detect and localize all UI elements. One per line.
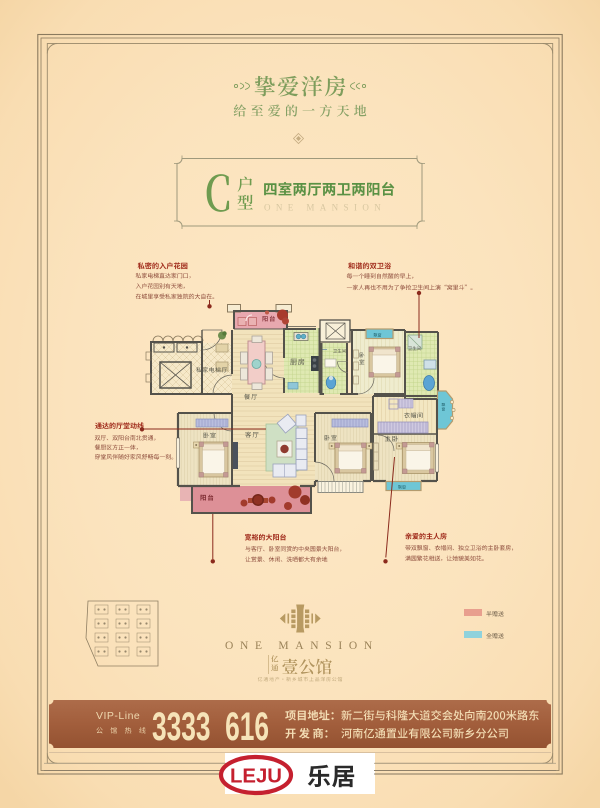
svg-text:LEJU: LEJU (230, 766, 282, 788)
svg-text:ONE MANSION: ONE MANSION (225, 640, 379, 652)
svg-text:ONE MANSION: ONE MANSION (264, 203, 386, 213)
svg-text:VIP-Line: VIP-Line (96, 710, 140, 722)
svg-text:3333 616: 3333 616 (152, 705, 269, 749)
